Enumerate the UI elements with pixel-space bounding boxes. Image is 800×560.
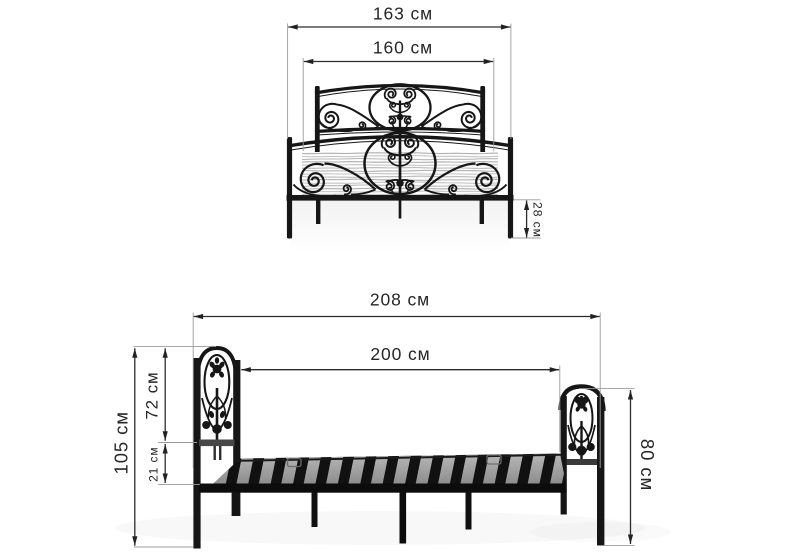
svg-text:208 см: 208 см [370, 289, 430, 309]
svg-text:80 см: 80 см [637, 439, 658, 491]
svg-text:21 см: 21 см [146, 446, 160, 481]
svg-text:200 см: 200 см [370, 344, 430, 364]
svg-text:72 см: 72 см [142, 371, 161, 419]
svg-text:163 см: 163 см [373, 3, 433, 23]
svg-text:105 см: 105 см [111, 411, 132, 474]
svg-text:160 см: 160 см [373, 37, 433, 57]
svg-text:28 см: 28 см [531, 202, 545, 238]
